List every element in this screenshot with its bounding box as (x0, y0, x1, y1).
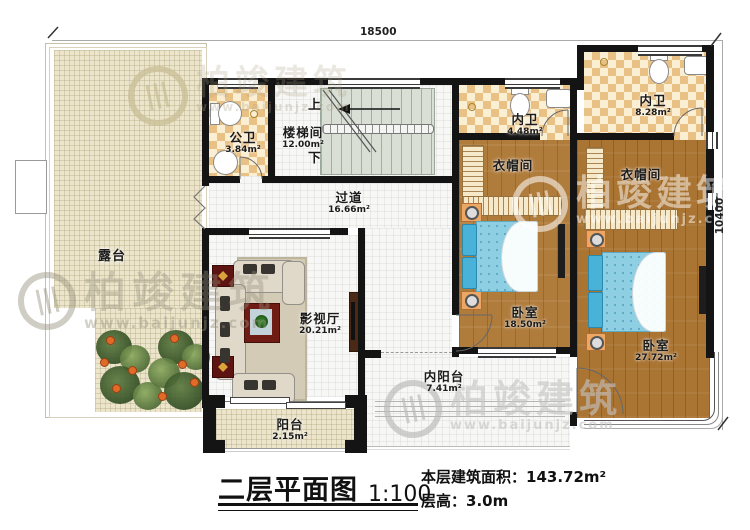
wall (262, 176, 452, 183)
room-area: 27.72m² (635, 353, 677, 363)
wall (365, 350, 381, 358)
table-plant (255, 315, 268, 328)
sofa-cushion (220, 348, 230, 363)
wall (202, 78, 209, 186)
room-label-bedroom2: 卧室 27.72m² (635, 339, 677, 364)
window (249, 228, 330, 239)
room-area: 12.00m² (282, 140, 324, 150)
room-name: 影视厅 (299, 312, 341, 326)
plant-berry (158, 392, 167, 401)
stair-handrail (322, 124, 434, 134)
sliding-door-panel (230, 397, 290, 404)
corridor-floor-south (365, 228, 452, 357)
title-underline-thick (218, 503, 418, 506)
room-label-closet2: 衣帽间 (621, 168, 662, 182)
plant (164, 372, 204, 410)
plant-berry (128, 366, 137, 375)
room-label-media-room: 影视厅 20.21m² (299, 312, 341, 337)
wall (202, 228, 249, 235)
floor-height-line: 层高：3.0m (421, 490, 508, 511)
inner-balcony-railing (375, 401, 565, 402)
floor-drain-bath2 (600, 58, 608, 66)
room-name: 衣帽间 (493, 159, 534, 173)
floor-area-line: 本层建筑面积：143.72m² (421, 466, 606, 487)
wardrobe-closet2-vertical (586, 147, 604, 211)
toilet-bath2-bowl (649, 59, 669, 84)
tv-bedroom1 (558, 224, 565, 278)
floor-drain-bath1 (468, 103, 476, 111)
room-name: 内阳台 (424, 370, 465, 384)
inner-balcony-floor (365, 357, 570, 447)
floor-plan: 18500 10400 柏竣建筑 www.baijunjz.com 柏竣建筑 w… (0, 0, 750, 530)
nightstand (586, 230, 606, 248)
room-name: 内卫 (635, 94, 671, 108)
room-label-bath1: 内卫 4.48m² (507, 113, 543, 138)
balcony-front-edge (214, 451, 354, 452)
room-area: 18.50m² (504, 320, 546, 330)
sofa-cushion (220, 322, 230, 337)
balcony-front-edge (214, 448, 354, 449)
wall (452, 85, 459, 315)
room-label-inner-balcony: 内阳台 7.41m² (424, 370, 465, 395)
window (328, 78, 420, 89)
wall (570, 85, 577, 357)
room-name: 衣帽间 (621, 168, 662, 182)
pillow (588, 292, 603, 328)
room-area: 8.28m² (635, 108, 671, 118)
blanket (501, 221, 538, 292)
room-label-corridor: 过道 16.66m² (328, 191, 370, 216)
toilet-public-bowl (218, 101, 242, 126)
room-label-balcony: 阳台 2.15m² (272, 418, 308, 443)
room-label-closet1: 衣帽间 (493, 159, 534, 173)
room-label-bath2: 内卫 8.28m² (635, 94, 671, 119)
wardrobe-closet1-vertical (462, 145, 484, 199)
wall (570, 412, 577, 426)
room-name: 内卫 (507, 113, 543, 127)
wall (452, 347, 478, 354)
dim-tick (48, 27, 58, 38)
wall (203, 440, 225, 453)
inner-balcony-railing (375, 406, 565, 407)
room-area: 4.48m² (507, 127, 543, 137)
room-name: 楼梯间 (282, 126, 324, 140)
room-name: 过道 (328, 191, 370, 205)
sink-bath1 (546, 89, 572, 108)
dimension-right-value: 10400 (714, 196, 726, 236)
floor-drain-public (250, 110, 258, 118)
floor-height-label: 层高： (421, 492, 466, 510)
plant-berry (190, 378, 199, 387)
pillow (462, 224, 477, 256)
left-bumpout (15, 160, 47, 214)
sofa-cushion (220, 296, 230, 311)
inner-balcony-edge (365, 446, 570, 447)
wall (202, 229, 209, 408)
plant-berry (112, 384, 121, 393)
window (218, 78, 258, 89)
terrace-floor (54, 50, 202, 308)
dimension-top-value: 18500 (360, 26, 397, 38)
window (505, 78, 560, 89)
wall (345, 440, 367, 453)
room-name: 卧室 (635, 339, 677, 353)
inner-balcony-railing (375, 416, 565, 417)
inner-balcony-railing (375, 411, 565, 412)
sofa-chaise (282, 261, 305, 305)
nightstand (461, 203, 482, 222)
wall (268, 85, 275, 176)
wardrobe-closet2-horizontal (584, 209, 678, 230)
room-name: 公卫 (225, 131, 261, 145)
floor-area-value: 143.72m² (526, 468, 606, 486)
room-name: 卧室 (504, 306, 546, 320)
corridor-open-boundary (381, 352, 452, 353)
room-label-stairwell: 楼梯间 12.00m² (282, 126, 324, 151)
plant-berry (170, 334, 179, 343)
room-area: 3.84m² (225, 145, 261, 155)
window (478, 347, 556, 358)
tv-media (351, 302, 355, 340)
floor-area-label: 本层建筑面积： (421, 468, 526, 486)
stairs-up-label: 上 (308, 99, 322, 114)
nightstand (586, 333, 606, 351)
pillow (588, 255, 603, 291)
room-area: 7.41m² (424, 384, 465, 394)
room-area: 16.66m² (328, 205, 370, 215)
room-label-bedroom1: 卧室 18.50m² (504, 306, 546, 331)
title-block: 二层平面图 1:100 (218, 468, 431, 507)
wall (556, 347, 577, 354)
plant-berry (178, 360, 187, 369)
stairs-down-label: 下 (308, 152, 322, 167)
plan-title: 二层平面图 (218, 468, 358, 507)
room-label-public-bath: 公卫 3.84m² (225, 131, 261, 156)
window (706, 132, 718, 149)
wall (577, 45, 584, 90)
window (638, 45, 702, 56)
sofa-cushion (262, 380, 276, 390)
accent-lamp (212, 265, 234, 287)
nightstand (461, 291, 482, 310)
pillow (462, 257, 477, 289)
room-name: 阳台 (272, 418, 308, 432)
stairs-down-text: 下 (308, 152, 322, 167)
stairs-up-text: 上 (308, 99, 322, 114)
sofa-cushion (261, 264, 275, 274)
title-underline-thin (218, 510, 418, 511)
inner-balcony-edge (365, 449, 570, 450)
tv-bedroom2 (699, 266, 706, 314)
wall (358, 228, 365, 408)
room-area: 20.21m² (299, 326, 341, 336)
floor-height-value: 3.0m (466, 492, 508, 510)
sliding-door-panel (286, 402, 346, 409)
dimension-line-top (52, 40, 722, 41)
wall (202, 176, 240, 183)
room-area: 2.15m² (272, 432, 308, 442)
room-name: 露台 (98, 250, 126, 265)
plant-berry (100, 358, 109, 367)
sofa-cushion (244, 380, 258, 390)
wall (577, 133, 674, 140)
plant-berry (106, 336, 115, 345)
room-label-terrace: 露台 (98, 250, 126, 265)
sofa-cushion (243, 264, 257, 274)
wall (330, 228, 348, 235)
